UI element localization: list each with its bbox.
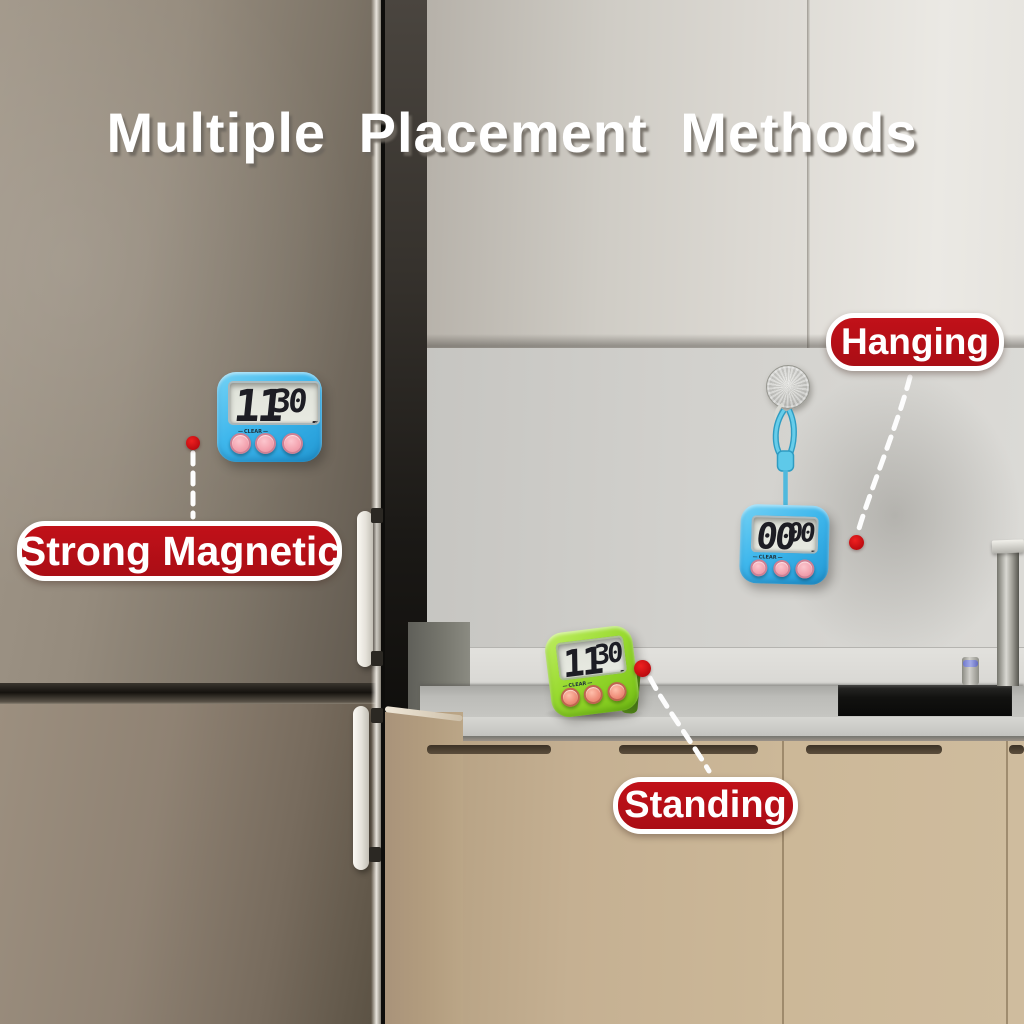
- handle-bracket: [371, 651, 383, 666]
- drawer-handle-slot: [619, 745, 758, 754]
- timer-magnetic-display: 11 30 MS: [228, 381, 320, 425]
- marker-dot-hanging: [849, 535, 864, 550]
- timer-button: [583, 684, 604, 705]
- timer-standing-group: 11 30 MS CLEAR: [541, 621, 644, 724]
- timer-standing: 11 30 MS CLEAR: [543, 624, 641, 719]
- timer-hanging: 00 00 MS CLEAR: [739, 504, 830, 585]
- marker-dot-magnetic: [186, 436, 200, 450]
- timer-button: [773, 560, 790, 577]
- timer-seconds: 30: [270, 385, 306, 417]
- handle-bracket: [371, 708, 383, 723]
- handle-bracket: [371, 508, 383, 523]
- fridge-lower-door: [0, 704, 383, 1024]
- timer-hanging-display: 00 00 MS: [751, 515, 819, 554]
- backsplash: [427, 648, 1024, 688]
- timer-button: [560, 687, 581, 708]
- faucet-spout: [992, 539, 1024, 553]
- marker-dot-standing: [634, 660, 651, 677]
- timer-seconds: 30: [594, 639, 621, 669]
- upper-cabinets: [427, 0, 1024, 348]
- fridge-door-gap: [0, 683, 383, 704]
- timer-button: [255, 433, 276, 454]
- timer-button: [606, 681, 627, 702]
- drawer-handle-slot: [806, 745, 942, 754]
- adhesive-hook-disc: [766, 365, 810, 409]
- drawer-handle-slot: [1009, 745, 1024, 754]
- cabinet-door-seam: [807, 0, 810, 348]
- timer-button: [282, 433, 303, 454]
- cabinet-end-panel: [385, 712, 463, 1024]
- handle-bracket: [369, 847, 381, 862]
- drawer-handle-slot: [427, 745, 551, 754]
- timer-button: [750, 559, 767, 576]
- timer-magnetic: 11 30 MS CLEAR: [217, 372, 322, 462]
- sink-basin: [838, 685, 1012, 716]
- sprayer-glint: [963, 660, 978, 667]
- lower-cabinet-seam: [1006, 741, 1008, 1024]
- kitchen-product-photo: 11 30 MS CLEAR 00 00 MS CLEAR 11 30 MS C: [0, 0, 1024, 1024]
- badge-hanging: Hanging: [826, 313, 1004, 371]
- fridge-handle-upper: [357, 511, 373, 667]
- faucet: [997, 549, 1019, 686]
- timer-standing-display: 11 30 MS: [555, 635, 627, 681]
- page-title: Multiple Placement Methods: [0, 100, 1024, 165]
- timer-seconds: 00: [786, 520, 815, 547]
- badge-standing: Standing: [613, 777, 798, 834]
- fridge-handle-lower: [353, 706, 369, 870]
- timer-button: [795, 559, 814, 578]
- counter-front-edge: [420, 717, 1024, 736]
- badge-strong-magnetic: Strong Magnetic: [17, 521, 342, 581]
- timer-button: [230, 433, 251, 454]
